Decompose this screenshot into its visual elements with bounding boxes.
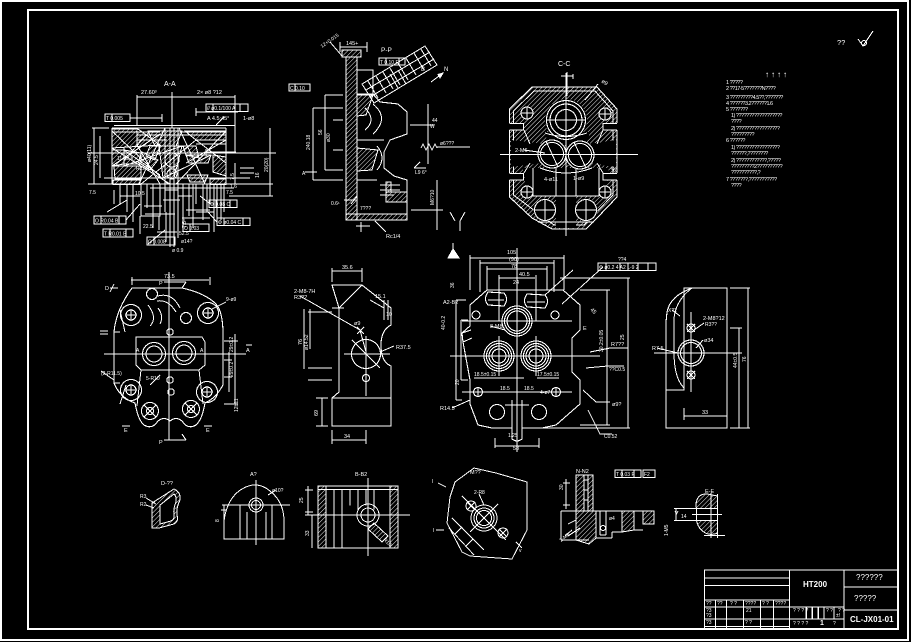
svg-text:14: 14 — [681, 514, 687, 520]
svg-text:O 0.03: O 0.03 — [184, 226, 199, 232]
svg-text:1: 1 — [820, 620, 824, 627]
svg-text:78: 78 — [511, 264, 517, 270]
svg-text:Rc1/4: Rc1/4 — [386, 234, 400, 240]
svg-text:44: 44 — [432, 118, 438, 124]
svg-text:R3??: R3?? — [705, 322, 717, 328]
svg-text:↑↑↑↑: ↑↑↑↑ — [765, 70, 789, 79]
svg-text:6 ??????: 6 ?????? — [726, 138, 745, 144]
svg-text:D: D — [105, 286, 109, 292]
svg-text:2 ??17-5???????N????: 2 ??17-5???????N???? — [726, 86, 776, 92]
svg-text:73.5: 73.5 — [164, 274, 175, 280]
svg-text:E: E — [124, 428, 128, 434]
svg-text:??: ?? — [706, 601, 712, 607]
svg-text:R37.5: R37.5 — [396, 345, 411, 351]
svg-text:ø9?: ø9? — [612, 402, 621, 408]
svg-text:D-??: D-?? — [161, 481, 173, 487]
svg-text:Φ ø0.2 4 A2 L-9 2: Φ ø0.2 4 A2 L-9 2 — [599, 265, 639, 271]
svg-text:L9 6°: L9 6° — [415, 170, 427, 176]
svg-text:????: ???? — [775, 601, 786, 607]
svg-text:33: 33 — [305, 530, 311, 536]
svg-text:12+0.015: 12+0.015 — [320, 33, 341, 50]
svg-text:(2-R11.5): (2-R11.5) — [101, 371, 122, 377]
svg-text:ø9: ø9 — [354, 321, 360, 327]
svg-text:15.1: 15.1 — [375, 294, 386, 300]
svg-text:±!: ±! — [836, 613, 840, 619]
svg-text:18.5: 18.5 — [500, 386, 510, 392]
svg-text:????: ???? — [731, 119, 742, 125]
svg-text:B-B2: B-B2 — [355, 472, 367, 478]
svg-text:????: ???? — [745, 601, 756, 607]
svg-text:T 0.005: T 0.005 — [106, 116, 123, 122]
svg-text:ø30: ø30 — [326, 133, 332, 142]
svg-text:? ? ? ?: ? ? ? ? — [793, 621, 809, 627]
svg-text:R7.5: R7.5 — [652, 346, 664, 352]
svg-text:69: 69 — [314, 410, 320, 416]
svg-text:76: 76 — [742, 356, 748, 362]
svg-text:30.2±0.05: 30.2±0.05 — [599, 330, 605, 352]
svg-text:O R0.04 B: O R0.04 B — [95, 219, 119, 225]
svg-text:2-M8: 2-M8 — [559, 532, 572, 544]
svg-text:58: 58 — [513, 446, 519, 452]
svg-text:F2: F2 — [644, 472, 650, 478]
svg-text:A?: A? — [250, 472, 257, 478]
svg-text:?: ? — [833, 621, 836, 627]
svg-text:9-ø9: 9-ø9 — [226, 297, 237, 303]
svg-text:7???: 7??? — [360, 206, 371, 212]
svg-text:E: E — [206, 428, 210, 434]
svg-text:22.5: 22.5 — [143, 224, 153, 230]
svg-text:30: 30 — [559, 484, 565, 490]
svg-text:A: A — [136, 348, 140, 354]
svg-text:34: 34 — [344, 434, 350, 440]
svg-text:33: 33 — [702, 410, 708, 416]
svg-text:?3: ?3 — [706, 620, 712, 626]
svg-text:ø6???: ø6??? — [440, 141, 454, 147]
svg-text:24: 24 — [513, 280, 519, 286]
svg-text:// ø0.1/100 A: // ø0.1/100 A — [207, 106, 236, 112]
svg-text:I: I — [432, 479, 433, 485]
svg-text:C0.52: C0.52 — [604, 434, 618, 440]
svg-text:7.5: 7.5 — [226, 190, 233, 196]
svg-text:? ?: ? ? — [762, 601, 769, 607]
svg-text:M6?10: M6?10 — [430, 189, 436, 205]
svg-text:45: 45 — [589, 307, 598, 316]
svg-text:T 0.03 F: T 0.03 F — [616, 472, 635, 478]
svg-text:56: 56 — [318, 129, 324, 135]
svg-text:24.5: 24.5 — [94, 155, 100, 165]
svg-text:??4: ??4 — [618, 257, 627, 263]
svg-text:R2: R2 — [140, 502, 147, 508]
svg-text:0.6¹: 0.6¹ — [331, 201, 340, 207]
svg-text:1-ø9: 1-ø9 — [573, 176, 584, 182]
svg-text:R3??: R3?? — [294, 295, 307, 301]
svg-text:T R0.01 B: T R0.01 B — [104, 232, 127, 238]
svg-text:R7??: R7?? — [611, 342, 624, 348]
svg-text:5-R10: 5-R10 — [146, 376, 160, 382]
svg-text:3-M8: 3-M8 — [490, 324, 503, 330]
svg-text:ø4: ø4 — [609, 516, 615, 522]
svg-text:8: 8 — [215, 519, 221, 522]
svg-text:R14.5: R14.5 — [440, 406, 455, 412]
svg-text:29±0.2: 29±0.2 — [229, 362, 235, 377]
svg-text:?3: ?3 — [706, 613, 712, 619]
svg-text:145+: 145+ — [346, 41, 358, 47]
svg-text:HT200: HT200 — [803, 580, 828, 589]
svg-text:C-C: C-C — [558, 61, 570, 68]
svg-text:ø9: ø9 — [600, 79, 609, 88]
svg-text:P-P: P-P — [381, 47, 392, 54]
svg-text:1-M5: 1-M5 — [664, 524, 670, 536]
svg-text:T 0.10 F: T 0.10 F — [380, 60, 399, 66]
svg-text:1.6: 1.6 — [230, 184, 237, 190]
svg-text:Φ 0.08 C: Φ 0.08 C — [210, 202, 230, 208]
svg-text:ø34: ø34 — [704, 338, 713, 344]
svg-text:P: P — [159, 440, 163, 446]
svg-text:ø10?: ø10? — [272, 488, 284, 494]
svg-text:21: 21 — [746, 608, 752, 614]
svg-text:2× ø8 ?12: 2× ø8 ?12 — [197, 90, 222, 96]
svg-text:27.60³: 27.60³ — [141, 90, 157, 96]
svg-text:? ? ? ?: ? ? ? ? — [793, 608, 809, 614]
svg-text:ø14?: ø14? — [181, 239, 193, 245]
svg-text:ø 0.9: ø 0.9 — [172, 248, 184, 254]
svg-text:C 0.10: C 0.10 — [290, 86, 305, 92]
svg-text:Φ ø0.04 C: Φ ø0.04 C — [218, 220, 242, 226]
svg-text:7.5: 7.5 — [89, 190, 96, 196]
svg-text:105: 105 — [507, 250, 516, 256]
svg-text:20: 20 — [455, 379, 461, 385]
svg-text:240.18: 240.18 — [306, 134, 312, 150]
svg-text:40.5: 40.5 — [519, 272, 530, 278]
svg-text:25: 25 — [299, 497, 305, 503]
svg-text:11 20.5: 11 20.5 — [117, 156, 134, 162]
svg-text:??????????,?: ??????????,? — [731, 170, 761, 176]
svg-text:??: ?? — [837, 38, 845, 47]
svg-text:35.6: 35.6 — [342, 265, 353, 271]
svg-text:18.5±0.15: 18.5±0.15 — [474, 372, 496, 378]
svg-text:1-ø8: 1-ø8 — [243, 116, 254, 122]
svg-text:10: 10 — [386, 312, 392, 318]
svg-text:10.5: 10.5 — [135, 191, 145, 197]
svg-text:? ?: ? ? — [730, 601, 737, 607]
svg-text:X?2: X?2 — [668, 308, 677, 314]
svg-text:A: A — [246, 348, 250, 354]
svg-text:16: 16 — [255, 172, 261, 178]
svg-text:2-M6: 2-M6 — [515, 148, 528, 154]
svg-text:A-A: A-A — [164, 81, 176, 88]
svg-text:A: A — [200, 348, 204, 354]
svg-text:??????,????????: ??????,???????? — [731, 151, 768, 157]
svg-text:P: P — [159, 281, 163, 287]
svg-text:N-N2: N-N2 — [576, 469, 589, 475]
svg-text:4-ø7: 4-ø7 — [540, 390, 551, 396]
svg-text:?????: ????? — [854, 594, 877, 603]
svg-text:ø40(11): ø40(11) — [87, 145, 93, 162]
svg-text:? ?: ? ? — [826, 608, 833, 614]
svg-text:(90): (90) — [509, 257, 519, 263]
svg-text:??????: ?????? — [856, 573, 883, 582]
svg-text:36: 36 — [450, 282, 456, 288]
svg-text:20(20): 20(20) — [264, 157, 270, 172]
svg-text:W: W — [430, 124, 435, 130]
svg-text:E: E — [583, 326, 587, 332]
svg-text:18.5: 18.5 — [524, 386, 534, 392]
svg-text:29±0.2: 29±0.2 — [229, 337, 235, 352]
svg-text:40-0.2: 40-0.2 — [441, 316, 447, 330]
svg-text:N: N — [444, 67, 448, 73]
svg-text:B: B — [421, 67, 425, 73]
svg-text:R22.5: R22.5 — [136, 166, 150, 172]
svg-text:2-R8: 2-R8 — [474, 490, 485, 496]
svg-text:7.5: 7.5 — [230, 173, 236, 180]
svg-text:1.25: 1.25 — [508, 433, 518, 439]
svg-text:A2-B2: A2-B2 — [443, 300, 458, 306]
svg-text:4-ø11: 4-ø11 — [544, 177, 558, 183]
svg-text:ø14.52: ø14.52 — [304, 334, 310, 350]
svg-text:12b11: 12b11 — [234, 398, 240, 412]
svg-text:25: 25 — [620, 334, 626, 340]
svg-text:M??: M?? — [470, 470, 481, 476]
svg-text:44±0.5: 44±0.5 — [733, 353, 739, 368]
svg-text:? ?: ? ? — [745, 620, 752, 626]
svg-text:v: v — [519, 548, 522, 554]
svg-text:17.5±0.15: 17.5±0.15 — [537, 372, 559, 378]
svg-text:??C0.5: ??C0.5 — [609, 367, 625, 373]
svg-text:I: I — [433, 528, 434, 534]
svg-text:R3: R3 — [140, 494, 147, 500]
svg-text:A 4.5:45°: A 4.5:45° — [207, 116, 229, 122]
svg-text:CL-JX01-01: CL-JX01-01 — [850, 615, 894, 624]
svg-text:O 0.008: O 0.008 — [148, 240, 166, 246]
svg-text:????: ???? — [731, 183, 742, 189]
svg-text:??: ?? — [717, 601, 723, 607]
